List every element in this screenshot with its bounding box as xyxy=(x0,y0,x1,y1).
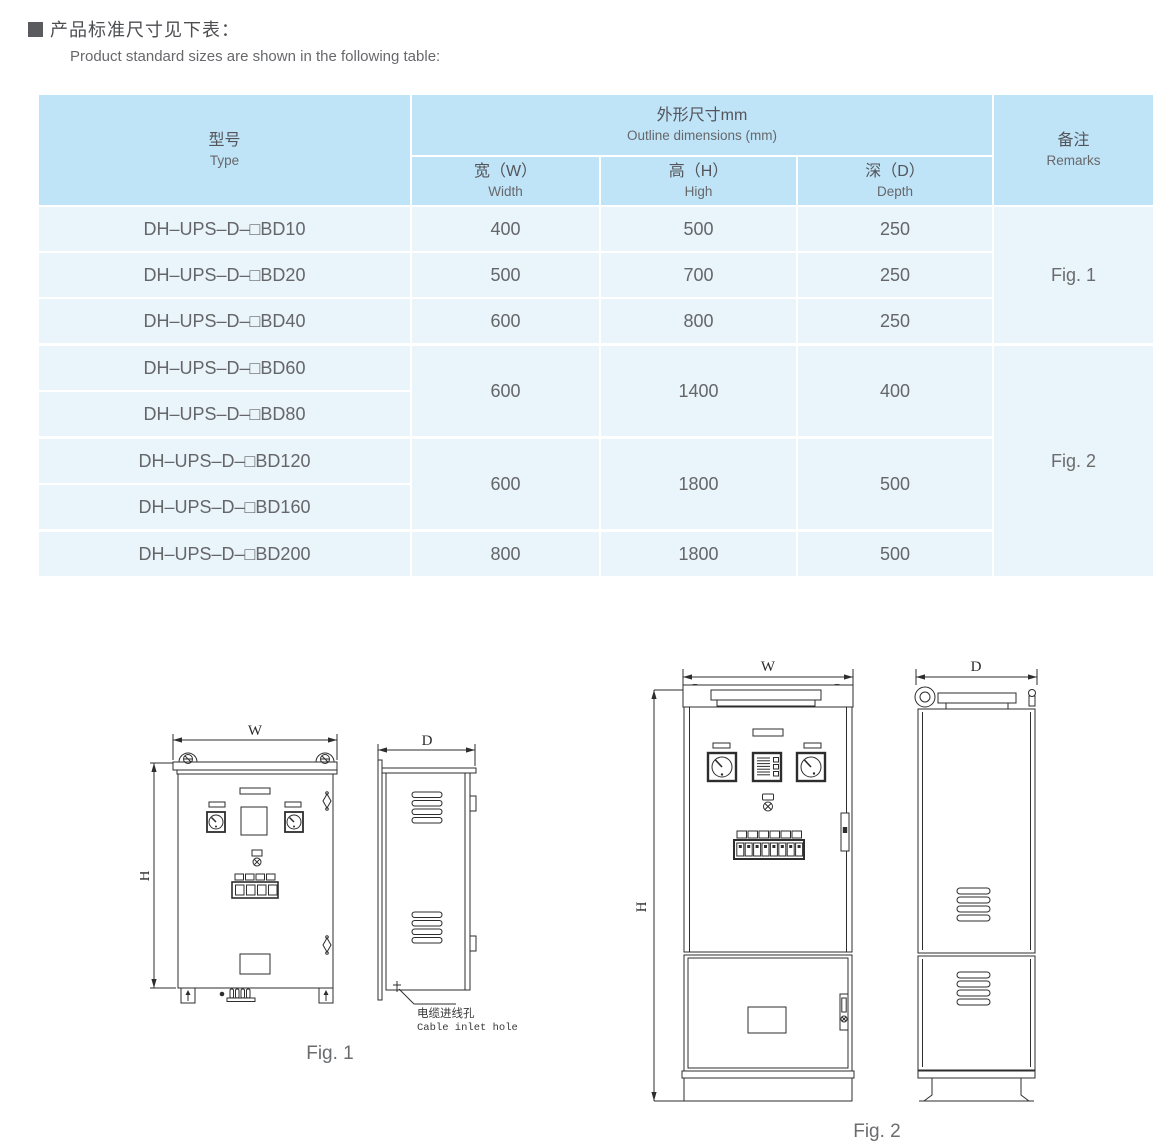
col-header-type-zh: 型号 xyxy=(39,130,410,152)
fig2-front-view xyxy=(682,685,854,1102)
col-header-type-en: Type xyxy=(39,152,410,170)
high-cell: 800 xyxy=(600,298,797,345)
table-row: DH–UPS–D–□BD20 500 700 250 xyxy=(38,252,1154,298)
depth-cell: 500 xyxy=(797,438,993,531)
width-cell: 400 xyxy=(411,206,600,252)
width-cell: 500 xyxy=(411,252,600,298)
mounting-foot-icon xyxy=(319,988,333,1003)
width-cell: 600 xyxy=(411,345,600,438)
col-header-type: 型号 Type xyxy=(38,94,411,206)
depth-cell: 500 xyxy=(797,531,993,578)
table-row: DH–UPS–D–□BD60 600 1400 400 Fig. 2 xyxy=(38,345,1154,392)
model-cell: DH–UPS–D–□BD60 xyxy=(38,345,411,392)
table-header-row-1: 型号 Type 外形尺寸mm Outline dimensions (mm) 备… xyxy=(38,94,1154,156)
high-cell: 1800 xyxy=(600,438,797,531)
col-header-width-en: Width xyxy=(412,183,599,201)
width-cell: 800 xyxy=(411,531,600,578)
fig1-side-view: 电缆进线孔 Cable inlet hole xyxy=(378,760,518,1034)
page-heading: 产品标准尺寸见下表： xyxy=(28,16,240,42)
lifting-eye-icon xyxy=(915,687,935,707)
fig1-d-label: D xyxy=(422,733,433,749)
fig2-caption: Fig. 2 xyxy=(853,1121,901,1142)
size-table: 型号 Type 外形尺寸mm Outline dimensions (mm) 备… xyxy=(37,93,1155,578)
col-header-width: 宽（W） Width xyxy=(411,156,600,206)
remark-cell-fig2: Fig. 2 xyxy=(993,345,1154,578)
high-cell: 1400 xyxy=(600,345,797,438)
col-header-outline-zh: 外形尺寸mm xyxy=(412,105,992,127)
mounting-foot-icon xyxy=(181,988,195,1003)
model-cell: DH–UPS–D–□BD40 xyxy=(38,298,411,345)
fig2-d-dimension: D xyxy=(916,659,1037,685)
col-header-high-zh: 高（H） xyxy=(601,161,796,183)
fig1-w-label: W xyxy=(248,723,263,739)
col-header-remarks-zh: 备注 xyxy=(994,130,1153,152)
mounting-rail xyxy=(378,760,382,1000)
depth-cell: 250 xyxy=(797,252,993,298)
square-bullet-icon xyxy=(28,22,43,37)
cable-gland-group xyxy=(220,989,255,1002)
fig2-w-dimension: W xyxy=(683,659,853,685)
width-cell: 600 xyxy=(411,438,600,531)
col-header-outline-en: Outline dimensions (mm) xyxy=(412,127,992,145)
col-header-width-zh: 宽（W） xyxy=(412,161,599,183)
table-row: DH–UPS–D–□BD40 600 800 250 xyxy=(38,298,1154,345)
hinge-icon xyxy=(470,936,476,951)
top-channel xyxy=(711,690,821,700)
model-cell: DH–UPS–D–□BD200 xyxy=(38,531,411,578)
fig2-side-view xyxy=(915,687,1036,1101)
stand-legs xyxy=(919,1078,1034,1101)
high-cell: 700 xyxy=(600,252,797,298)
depth-cell: 250 xyxy=(797,298,993,345)
fig1-h-label: H xyxy=(140,870,153,881)
fig1-h-dimension: H xyxy=(140,763,176,988)
fig1-front-view xyxy=(173,753,337,1003)
cable-inlet-label-zh: 电缆进线孔 xyxy=(417,1006,475,1020)
model-cell: DH–UPS–D–□BD10 xyxy=(38,206,411,252)
hinge-icon xyxy=(470,796,476,811)
eye-bolt-side-icon xyxy=(1029,690,1036,707)
model-cell: DH–UPS–D–□BD160 xyxy=(38,484,411,531)
fig1-caption: Fig. 1 xyxy=(306,1043,354,1064)
base-plinth xyxy=(684,1078,852,1101)
page-title-zh: 产品标准尺寸见下表： xyxy=(50,16,240,42)
depth-cell: 400 xyxy=(797,345,993,438)
base-strip xyxy=(918,1071,1035,1078)
table-row: DH–UPS–D–□BD120 600 1800 500 xyxy=(38,438,1154,485)
col-header-depth: 深（D） Depth xyxy=(797,156,993,206)
fig1-drawing: W H xyxy=(140,690,545,1075)
high-cell: 500 xyxy=(600,206,797,252)
door-handle-icon xyxy=(840,994,848,1030)
table-row: DH–UPS–D–□BD10 400 500 250 Fig. 1 xyxy=(38,206,1154,252)
model-cell: DH–UPS–D–□BD20 xyxy=(38,252,411,298)
door-handle-icon xyxy=(841,813,849,851)
fig2-h-label: H xyxy=(634,901,650,912)
col-header-depth-en: Depth xyxy=(798,183,992,201)
fig2-w-label: W xyxy=(761,659,776,675)
fig2-h-dimension: H xyxy=(634,690,688,1101)
width-cell: 600 xyxy=(411,298,600,345)
col-header-high: 高（H） High xyxy=(600,156,797,206)
fig1-d-dimension: D xyxy=(378,733,475,766)
col-header-depth-zh: 深（D） xyxy=(798,161,992,183)
table-row: DH–UPS–D–□BD200 800 1800 500 xyxy=(38,531,1154,578)
high-cell: 1800 xyxy=(600,531,797,578)
col-header-remarks: 备注 Remarks xyxy=(993,94,1154,206)
cable-inlet-label-en: Cable inlet hole xyxy=(417,1022,518,1034)
depth-cell: 250 xyxy=(797,206,993,252)
fig2-drawing: W H xyxy=(630,655,1060,1148)
fig2-d-label: D xyxy=(971,659,982,675)
fig1-w-dimension: W xyxy=(173,723,337,760)
model-cell: DH–UPS–D–□BD120 xyxy=(38,438,411,485)
page-title-en: Product standard sizes are shown in the … xyxy=(70,48,440,65)
remark-cell-fig1: Fig. 1 xyxy=(993,206,1154,345)
model-cell: DH–UPS–D–□BD80 xyxy=(38,391,411,438)
col-header-remarks-en: Remarks xyxy=(994,152,1153,170)
base-strip xyxy=(682,1071,854,1078)
col-header-high-en: High xyxy=(601,183,796,201)
col-header-outline: 外形尺寸mm Outline dimensions (mm) xyxy=(411,94,993,156)
